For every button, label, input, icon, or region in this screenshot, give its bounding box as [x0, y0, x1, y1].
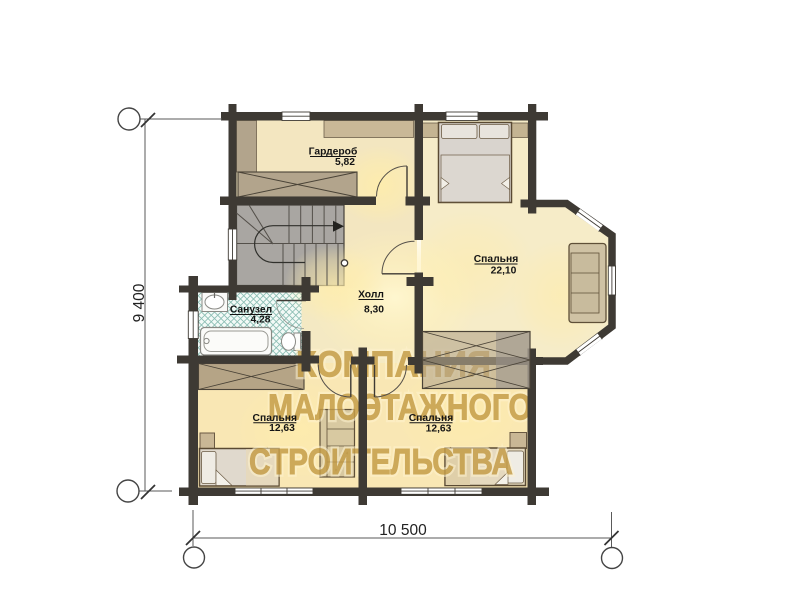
svg-text:Холл: Холл — [358, 290, 384, 301]
svg-text:12,63: 12,63 — [269, 423, 295, 434]
svg-text:5,82: 5,82 — [335, 157, 355, 168]
svg-text:4,28: 4,28 — [250, 315, 270, 326]
svg-text:12,63: 12,63 — [426, 424, 452, 435]
svg-text:8,30: 8,30 — [364, 305, 384, 316]
svg-text:МАЛОЭТАЖНОГО: МАЛОЭТАЖНОГО — [268, 387, 532, 428]
svg-text:Гардероб: Гардероб — [309, 146, 358, 158]
svg-text:Спальня: Спальня — [474, 254, 518, 265]
svg-text:Спальня: Спальня — [409, 413, 453, 424]
svg-text:9 400: 9 400 — [131, 283, 148, 322]
svg-text:СТРОИТЕЛЬСТВА: СТРОИТЕЛЬСТВА — [249, 441, 513, 482]
svg-text:22,10: 22,10 — [491, 266, 517, 277]
svg-text:10 500: 10 500 — [379, 522, 427, 539]
